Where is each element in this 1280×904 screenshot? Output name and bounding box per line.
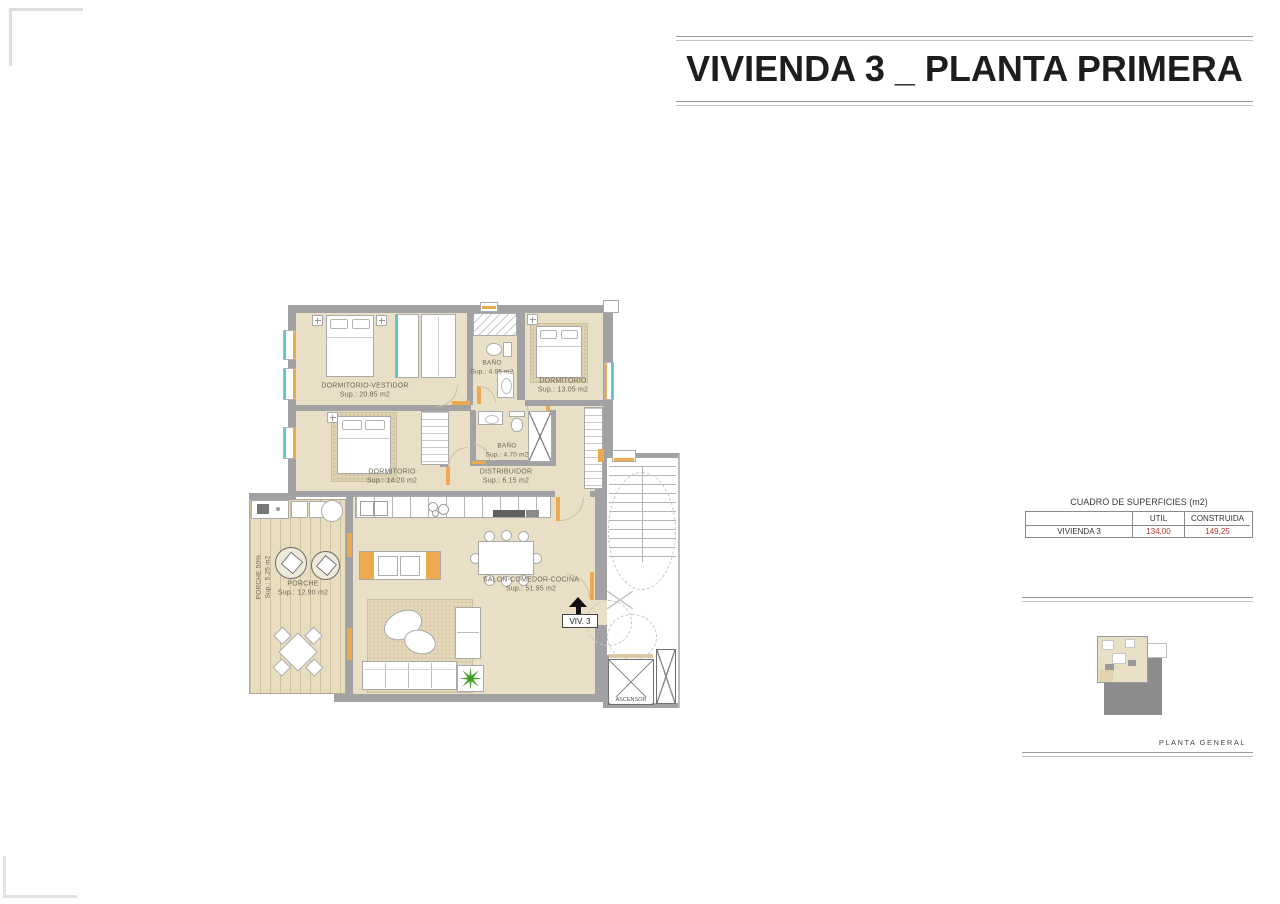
- papasan-cushion: [281, 552, 304, 575]
- title-rule: [676, 101, 1253, 102]
- closet: [421, 411, 449, 465]
- site-plan-detail: [1099, 670, 1113, 682]
- dining-table: [478, 541, 534, 575]
- bed: [536, 326, 582, 378]
- room-label-salon: SALON-COMEDOR-COCINA Sup.: 51.95 m2: [483, 577, 579, 594]
- pillow: [330, 319, 348, 329]
- window: [283, 427, 296, 459]
- door-leaf: [598, 449, 604, 462]
- surfaces-header-util: UTIL: [1132, 512, 1184, 525]
- nightstand: [527, 314, 538, 325]
- wall: [346, 497, 353, 694]
- porch-stool: [291, 501, 308, 518]
- bed-fold: [537, 346, 581, 347]
- room-name: SALON-COMEDOR-COCINA: [483, 577, 579, 586]
- wall: [603, 406, 613, 453]
- room-name: DORMITORIO-VESTIDOR: [321, 383, 408, 392]
- pillow: [540, 330, 557, 339]
- toilet-tank: [503, 342, 512, 357]
- papasan-cushion: [316, 555, 337, 576]
- oven: [493, 510, 525, 517]
- porch-appliance: [257, 504, 269, 514]
- room-label-porche50: PORCHE 50% Sup.: 5.25 m2: [256, 555, 273, 600]
- sideboard-stool: [378, 556, 398, 576]
- window-frame: [347, 628, 352, 660]
- sink-basin: [501, 378, 512, 394]
- wardrobe: [421, 314, 456, 378]
- sink-basin: [485, 415, 499, 424]
- site-plan-detail: [1125, 639, 1135, 648]
- panel-rule: [1022, 601, 1253, 602]
- door-leaf: [472, 461, 486, 464]
- elevator-lintel: [609, 654, 653, 658]
- elevator-label: ASCENSOR: [609, 697, 653, 703]
- vent-frame: [482, 306, 496, 309]
- elevator: ASCENSOR: [608, 659, 654, 705]
- plant-icon: [458, 666, 483, 691]
- wall: [288, 305, 612, 313]
- duct-shaft: [656, 649, 676, 704]
- sofa-section: [455, 607, 481, 659]
- shower: [528, 411, 552, 462]
- room-label-porche: PORCHE Sup.: 12.90 m2: [278, 581, 328, 598]
- site-plan-caption: PLANTA GENERAL: [1100, 738, 1246, 747]
- wall: [249, 493, 296, 500]
- sofa: [362, 661, 457, 690]
- door-leaf: [452, 401, 470, 405]
- pillar: [603, 300, 619, 313]
- page-title: VIVIENDA 3 _ PLANTA PRIMERA: [676, 48, 1253, 90]
- sideboard-stool: [400, 556, 420, 576]
- toilet: [511, 418, 523, 432]
- oven: [526, 510, 539, 517]
- room-label-distribuidor: DISTRIBUIDOR Sup.: 6.15 m2: [480, 469, 533, 486]
- cooktop-burner: [438, 504, 449, 515]
- room-label-bano2: BAÑO Sup.: 4.70 m2: [485, 443, 528, 460]
- panel-rule: [1022, 752, 1253, 753]
- room-sup: Sup.: 5.25 m2: [264, 555, 273, 600]
- door-leaf: [590, 572, 594, 600]
- surfaces-row-name: VIVIENDA 3: [1026, 525, 1132, 538]
- room-sup: Sup.: 14.20 m2: [367, 477, 417, 486]
- entry-label: VIV. 3: [569, 617, 590, 626]
- room-sup: Sup.: 13.05 m2: [538, 386, 588, 395]
- cooktop-burner: [432, 510, 439, 517]
- wall: [334, 694, 603, 702]
- papasan-chair: [311, 551, 340, 580]
- wardrobe: [395, 314, 419, 378]
- title-rule: [676, 105, 1253, 106]
- bed-fold: [327, 337, 373, 338]
- sideboard-end: [426, 552, 440, 579]
- surfaces-table-title: CUADRO DE SUPERFICIES (m2): [1025, 497, 1253, 507]
- room-label-dormitorio2: DORMITORIO Sup.: 13.05 m2: [538, 378, 588, 395]
- bed: [337, 416, 391, 474]
- surfaces-header-empty: [1026, 512, 1132, 525]
- room-sup: Sup.: 6.15 m2: [480, 477, 533, 486]
- sofa-cushion-line: [457, 632, 479, 633]
- porch-knob: [276, 507, 280, 511]
- vent: [480, 302, 498, 312]
- room-label-dormitorio-vestidor: DORMITORIO-VESTIDOR Sup.: 20.85 m2: [321, 383, 408, 400]
- toilet-tank: [509, 411, 525, 417]
- wall: [517, 312, 525, 400]
- door-leaf: [446, 467, 450, 485]
- stair-walkline: [608, 472, 676, 590]
- entry-label-box: VIV. 3: [562, 614, 598, 628]
- room-name: PORCHE 50%: [256, 555, 265, 600]
- panel-rule: [1022, 756, 1253, 757]
- sofa-back-line: [364, 669, 455, 670]
- room-name: DORMITORIO: [367, 469, 417, 478]
- nightstand: [327, 412, 338, 423]
- surfaces-header-construida: CONSTRUIDA: [1184, 512, 1250, 525]
- window-frame: [347, 533, 352, 557]
- window: [604, 362, 614, 400]
- pillow: [342, 420, 362, 430]
- site-plan-detail: [1102, 640, 1114, 650]
- title-rule: [676, 36, 1253, 37]
- title-rule: [676, 40, 1253, 41]
- pillow: [561, 330, 578, 339]
- toilet: [486, 343, 502, 356]
- plan-sheet: VIVIENDA 3 _ PLANTA PRIMERA CUADRO DE SU…: [0, 0, 1280, 904]
- site-plan-detail: [1128, 660, 1136, 666]
- site-plan-thumbnail: [1095, 634, 1177, 718]
- crop-mark-top-left-v: [9, 8, 12, 66]
- site-plan-annex: [1147, 643, 1167, 658]
- porch-round-table: [321, 500, 343, 522]
- room-sup: Sup.: 51.95 m2: [483, 585, 579, 594]
- sink: [478, 411, 503, 425]
- site-plan-detail: [1112, 653, 1126, 664]
- room-sup: Sup.: 4.95 m2: [470, 368, 513, 377]
- kitchen-counter: [355, 496, 551, 518]
- papasan-chair: [275, 547, 307, 579]
- sofa-cushion-line: [408, 663, 409, 688]
- nightstand: [376, 315, 387, 326]
- room-label-bano1: BAÑO Sup.: 4.95 m2: [470, 360, 513, 377]
- sideboard: [359, 551, 441, 580]
- stair-window-sill: [614, 458, 634, 461]
- crop-mark-top-left-h: [9, 8, 83, 11]
- bed: [326, 315, 374, 377]
- nightstand: [312, 315, 323, 326]
- panel-rule: [1022, 597, 1253, 598]
- surfaces-row-construida: 149,25: [1184, 525, 1250, 538]
- wardrobe-rail: [438, 317, 439, 375]
- crop-mark-bottom-left-v: [3, 856, 6, 898]
- sideboard-end: [360, 552, 374, 579]
- room-name: DISTRIBUIDOR: [480, 469, 533, 478]
- stair-window: [612, 450, 636, 462]
- kitchen-sink: [374, 501, 388, 516]
- window: [283, 368, 296, 400]
- surfaces-row-util: 134,00: [1132, 525, 1184, 538]
- site-plan-unit: [1097, 636, 1148, 683]
- room-name: BAÑO: [470, 360, 513, 369]
- surfaces-table: UTIL CONSTRUIDA VIVIENDA 3 134,00 149,25: [1025, 511, 1253, 538]
- pillow: [352, 319, 370, 329]
- room-name: BAÑO: [485, 443, 528, 452]
- hall-wardrobe: [584, 407, 603, 489]
- room-name: DORMITORIO: [538, 378, 588, 387]
- dining-chair: [501, 530, 512, 541]
- kitchen-sink: [360, 501, 374, 516]
- porch-counter: [251, 500, 289, 519]
- room-sup: Sup.: 20.85 m2: [321, 391, 408, 400]
- plant-pot: [457, 665, 484, 692]
- room-label-dormitorio3: DORMITORIO Sup.: 14.20 m2: [367, 469, 417, 486]
- sofa-cushion-line: [385, 663, 386, 688]
- pillow: [365, 420, 385, 430]
- room-sup: Sup.: 12.90 m2: [278, 589, 328, 598]
- wall-thin: [678, 453, 680, 708]
- shower: [473, 313, 517, 336]
- room-sup: Sup.: 4.70 m2: [485, 451, 528, 460]
- entry-arrow-stem: [576, 606, 581, 614]
- crop-mark-bottom-left-h: [3, 895, 77, 898]
- bed-fold: [338, 438, 390, 439]
- sofa-cushion-line: [431, 663, 432, 688]
- room-name: PORCHE: [278, 581, 328, 590]
- window: [283, 330, 296, 360]
